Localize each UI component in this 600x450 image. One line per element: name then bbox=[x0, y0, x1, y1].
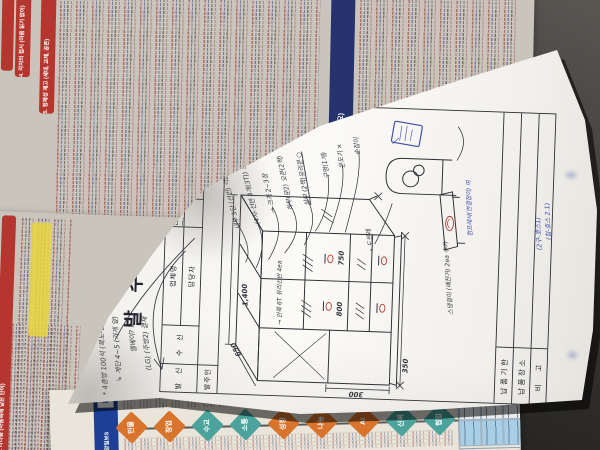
blue-corner-note: (참-호스 2.1) bbox=[543, 203, 554, 241]
dimension-b2: 800 bbox=[335, 302, 343, 317]
diamond-label: 인물 bbox=[120, 416, 144, 440]
delivery-deadline-label: 납품기한 bbox=[493, 347, 513, 404]
remarks-label: 비 고 bbox=[529, 348, 548, 405]
interior-note: → 안쪽 6T 유리선반 4ea bbox=[275, 261, 284, 325]
dimension-b1: 350 bbox=[401, 358, 409, 373]
ink-smudge bbox=[566, 172, 576, 178]
diamond-label: 수교 bbox=[196, 414, 220, 438]
red-section-band bbox=[1, 0, 15, 71]
blue-ink-notepad bbox=[391, 121, 423, 147]
dimension-height: 300 bbox=[349, 390, 364, 398]
section-4-title: 4. 각자의 접시 (마음 읽기 없이) bbox=[17, 5, 26, 77]
diamond-label: 창업 bbox=[158, 415, 182, 439]
dimension-b3: 750 bbox=[337, 251, 345, 266]
sender-label: 발 신 bbox=[160, 363, 198, 392]
photo-of-order-form: 4. 각자의 접시 (마음 읽기 없이) 5. 정체성 제고 (세대, 교체, … bbox=[0, 0, 600, 450]
red-section-band-4: 4. 각자의 접시 (마음 읽기 없이) bbox=[15, 0, 32, 77]
section-5-title: 5. 정체성 제고 (세대, 교체, 공존) bbox=[41, 39, 51, 114]
form-footer-table: 납품기한 납품장소 비 고 bbox=[493, 113, 555, 405]
red-section-band-5: 5. 정체성 제고 (세대, 교체, 공존) bbox=[39, 0, 57, 114]
blue-corner-note: (2구-호스1) bbox=[534, 217, 545, 251]
orderer-label: 발주인 bbox=[197, 364, 218, 393]
recipient-label: 수 신 bbox=[161, 324, 199, 364]
dimension-width: 1,400 bbox=[241, 284, 250, 307]
section-2-title: 2. 나다움 (마음속에 담은 단어) bbox=[0, 383, 6, 450]
annotation: 손잡이 bbox=[352, 137, 363, 156]
ink-smudge bbox=[568, 352, 577, 358]
banner-title: 중앙일보S bbox=[102, 431, 111, 450]
delivery-place-label: 납품장소 bbox=[511, 347, 531, 404]
yellow-highlight-strip bbox=[28, 222, 52, 337]
